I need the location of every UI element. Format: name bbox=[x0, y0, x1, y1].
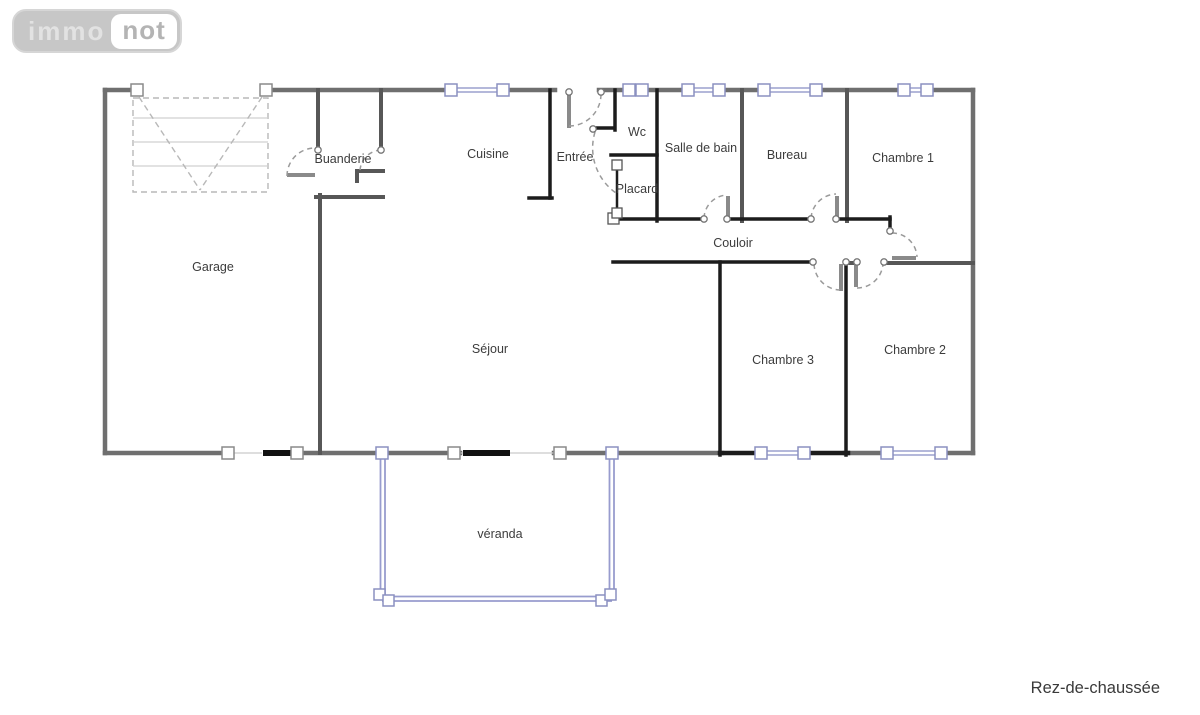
room-label-chambre-2: Chambre 2 bbox=[884, 343, 946, 357]
door-hinges bbox=[315, 89, 893, 265]
room-label-buanderie: Buanderie bbox=[315, 152, 372, 166]
floor-level-label: Rez-de-chaussée bbox=[1031, 679, 1160, 698]
room-label-garage: Garage bbox=[192, 260, 234, 274]
room-label-placard: Placard bbox=[616, 182, 658, 196]
secondary-walls bbox=[316, 90, 973, 453]
room-label-veranda: véranda bbox=[477, 527, 522, 541]
room-label-chambre-3: Chambre 3 bbox=[752, 353, 814, 367]
room-labels: Garage Buanderie Cuisine Entrée Wc Salle… bbox=[192, 125, 946, 541]
room-label-sejour: Séjour bbox=[472, 342, 508, 356]
room-label-wc: Wc bbox=[628, 125, 646, 139]
room-label-chambre-1: Chambre 1 bbox=[872, 151, 934, 165]
room-label-cuisine: Cuisine bbox=[467, 147, 509, 161]
room-label-salle-de-bain: Salle de bain bbox=[665, 141, 737, 155]
room-label-bureau: Bureau bbox=[767, 148, 807, 162]
room-label-entree: Entrée bbox=[557, 150, 594, 164]
floor-plan: Garage Buanderie Cuisine Entrée Wc Salle… bbox=[0, 0, 1200, 715]
garage-door-symbol bbox=[131, 84, 272, 192]
room-label-couloir: Couloir bbox=[713, 236, 753, 250]
